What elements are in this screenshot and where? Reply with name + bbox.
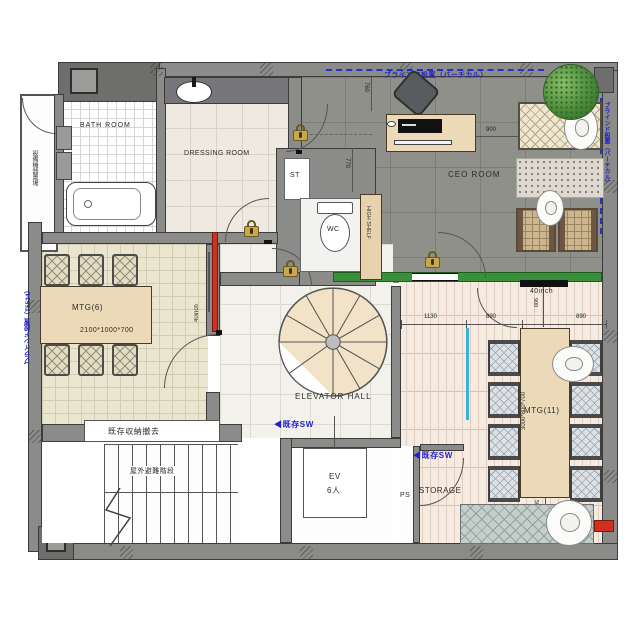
dim-900: 900: [486, 127, 496, 133]
dim-900-display: 900: [532, 298, 538, 307]
chair: [112, 344, 138, 376]
lock-keyhole: [431, 259, 434, 265]
chair: [488, 382, 520, 418]
dim-tick: [606, 320, 607, 329]
mouse: [387, 121, 396, 127]
person-head: [560, 513, 580, 532]
shaft-box: [70, 68, 98, 94]
person-figure: [536, 190, 564, 226]
dim-line: [476, 136, 518, 137]
elevator-hall-label: ELEVATOR HALL: [295, 392, 372, 401]
ev-label: EV: [329, 472, 341, 481]
door-centerline: [310, 134, 372, 135]
lock-keyhole: [289, 268, 292, 274]
chair: [488, 424, 520, 460]
wall-segment: [280, 438, 401, 448]
mtg6-display-label: 40inch: [194, 262, 200, 322]
elevator-car: [303, 448, 367, 518]
mtg6-label: MTG(6): [72, 303, 103, 312]
laptop-screen-line: [402, 124, 416, 126]
red-accent: [594, 520, 614, 532]
dim-890b: 890: [576, 314, 586, 320]
mtg6-table: [40, 286, 152, 344]
stair-landing: [42, 444, 104, 543]
chair: [112, 254, 138, 286]
blind-left-note: ブラインド設置（T5524）: [24, 248, 34, 364]
person-figure: [552, 346, 594, 382]
person-figure: [546, 500, 592, 546]
bath-unit: [56, 126, 72, 150]
wall-segment: [280, 438, 292, 543]
lock-icon: [243, 220, 260, 238]
spiral-staircase: [275, 284, 391, 400]
bath-unit: [56, 152, 72, 180]
door-jamb: [216, 330, 222, 335]
high-shelf-label: HIGH SHELF: [365, 206, 371, 239]
rug: [516, 158, 604, 198]
chair: [570, 382, 602, 418]
faucet: [192, 77, 196, 87]
mtg6-size-label: 2100*1000*700: [80, 327, 133, 334]
mtg11-label: MTG(11): [524, 406, 560, 415]
mtg11-display: [520, 280, 568, 287]
keyboard: [394, 140, 452, 145]
lock-icon: [292, 124, 309, 142]
equipment-space-label: 設備機器置場: [30, 150, 39, 186]
bathtub-drain: [84, 200, 92, 208]
dim-770: 770: [344, 158, 350, 168]
chair: [44, 344, 70, 376]
dim-890a: 890: [486, 314, 496, 320]
person-head: [565, 357, 583, 372]
plant: [543, 64, 599, 120]
chair: [488, 466, 520, 502]
dim-line: [352, 148, 353, 192]
floor-plan: BATH ROOM DRESSING ROOM ST WC 設備機器置場 ブライ…: [0, 0, 630, 630]
lock-icon: [282, 260, 299, 278]
door-jamb: [264, 240, 272, 244]
break-line: [98, 488, 144, 546]
st-closet: [284, 158, 310, 200]
ceo-room-label: CEO ROOM: [448, 170, 500, 179]
existing-sw-note: ◀既存SW: [413, 450, 453, 461]
dim-tick: [401, 320, 402, 329]
dim-line: [371, 77, 372, 111]
high-shelf: [360, 194, 382, 280]
mtg11-display-label: 40inch: [530, 288, 553, 295]
person-head: [545, 201, 557, 216]
mtg11-size-label: 3000*800*700: [521, 340, 527, 430]
existing-sw-note: ◀既存SW: [274, 419, 314, 430]
lock-keyhole: [250, 228, 253, 234]
chair: [78, 344, 104, 376]
st-label: ST: [290, 172, 300, 179]
outdoor-stairs-label: 屋外避難階段: [128, 466, 176, 476]
dressing-floor: [164, 102, 290, 234]
chair: [570, 424, 602, 460]
glass-partition: [466, 328, 469, 420]
door-jamb: [296, 150, 302, 154]
chair: [488, 340, 520, 376]
chair: [78, 254, 104, 286]
remove-storage-note: 既存収納撤去: [108, 426, 160, 437]
display-bracket: [208, 252, 210, 312]
laptop: [398, 119, 442, 133]
lock-keyhole: [299, 132, 302, 138]
ev-capacity-label: 6人: [327, 485, 341, 496]
chair: [44, 254, 70, 286]
ps-label: PS: [400, 492, 410, 499]
chair: [570, 466, 602, 502]
person-head: [575, 119, 590, 137]
bathroom-label: BATH ROOM: [80, 122, 131, 129]
dim-760: 760: [363, 82, 369, 92]
lock-icon: [424, 251, 441, 269]
wall-segment: [391, 286, 401, 438]
toilet-bowl: [320, 214, 350, 252]
mtg6-display-strip: [212, 232, 218, 332]
armchair: [558, 208, 598, 252]
dim-1130: 1130: [424, 314, 437, 320]
toilet-tank: [317, 202, 353, 214]
dim-line: [401, 324, 607, 325]
dressing-label: DRESSING ROOM: [184, 150, 249, 157]
storage-label: STORAGE: [419, 486, 461, 495]
blind-top-note: ブラインド設置（バーチカル）: [384, 70, 488, 80]
wc-label: WC: [327, 226, 339, 233]
